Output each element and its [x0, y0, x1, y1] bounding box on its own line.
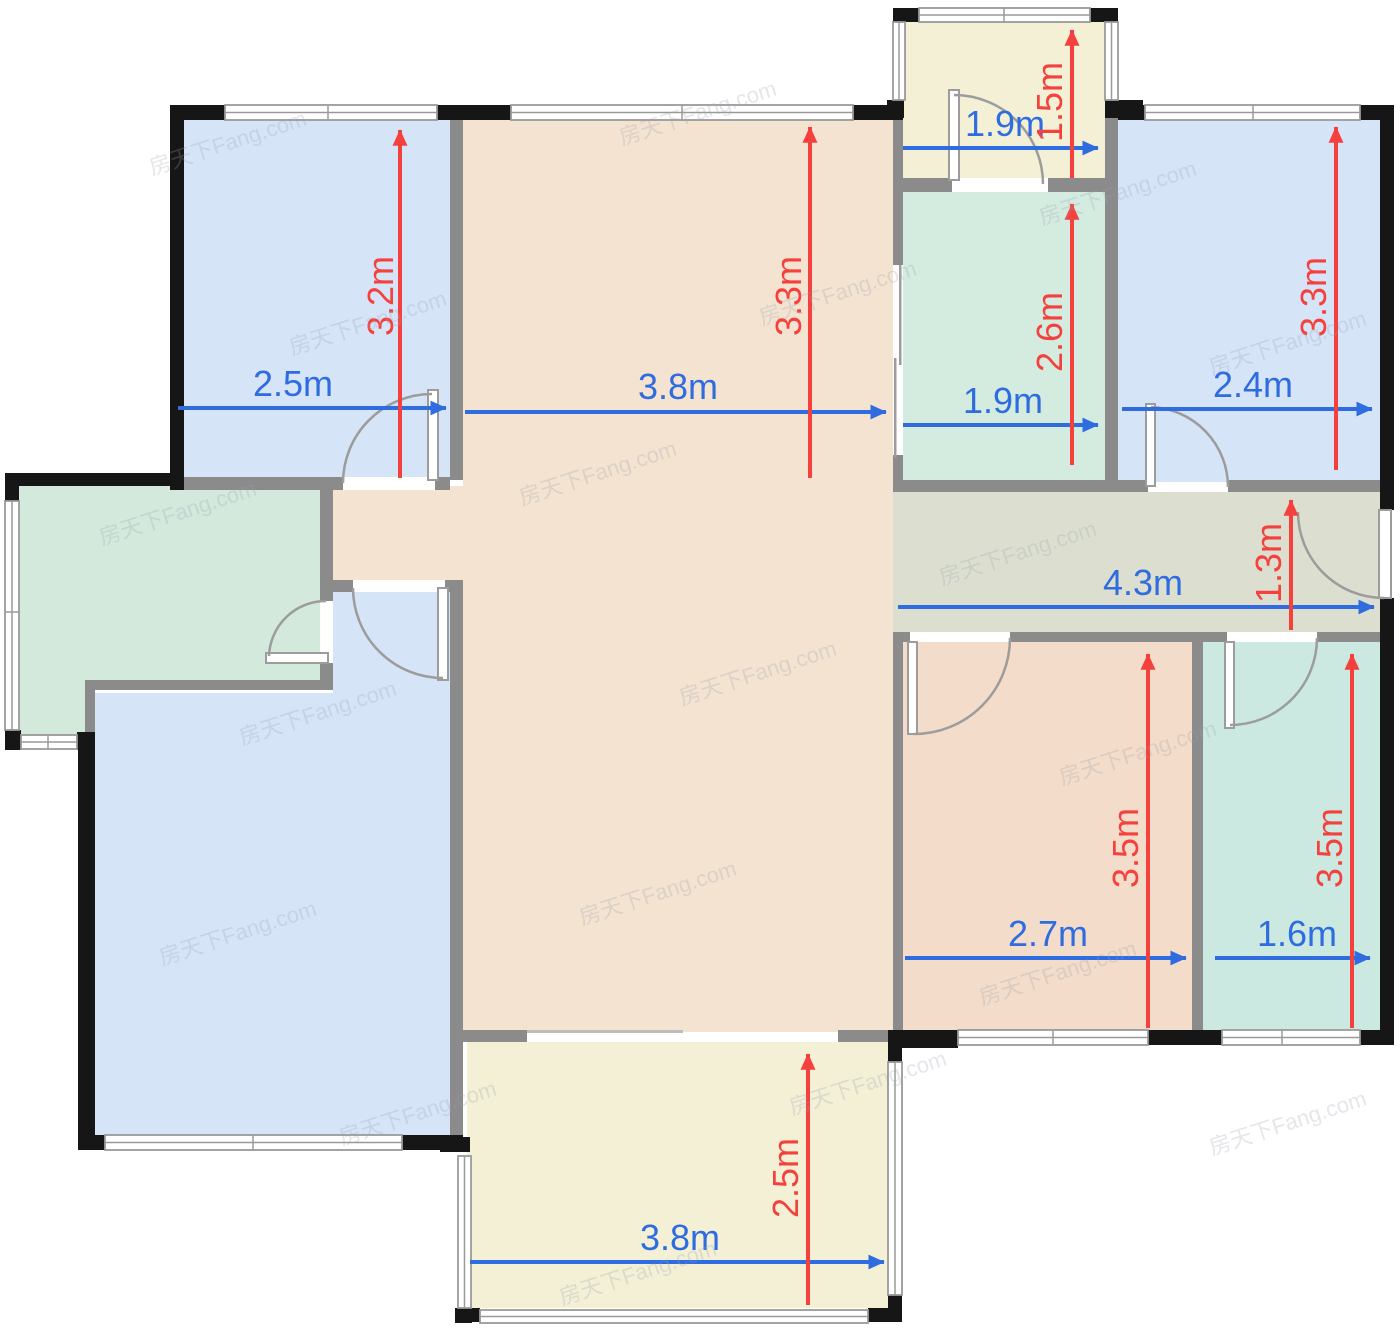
height-label-bathroom-bottom-right: 3.5m	[1309, 808, 1350, 888]
window	[1145, 105, 1360, 120]
window	[919, 8, 1090, 22]
window	[888, 1062, 902, 1295]
width-label-bedroom-bottom: 2.7m	[1008, 913, 1088, 954]
window	[480, 1310, 868, 1323]
watermark-text: 房天下Fang.com	[1206, 1086, 1370, 1160]
floor-plan-canvas: 2.5m 3.2m 3.8m 3.3m 1.9m 1.5m 1.9m 2.6m …	[0, 0, 1400, 1328]
window	[458, 1156, 471, 1308]
room-balcony-top	[903, 22, 1105, 178]
width-label-living: 3.8m	[638, 366, 718, 407]
window	[1222, 1030, 1360, 1045]
height-label-hallway: 1.3m	[1248, 523, 1289, 603]
width-label-bathroom-top: 1.9m	[963, 380, 1043, 421]
window	[893, 22, 905, 100]
room-fills-layer	[17, 22, 1380, 1308]
window	[5, 501, 19, 730]
height-label-bathroom-top: 2.6m	[1029, 292, 1070, 372]
width-label-hallway: 4.3m	[1103, 562, 1183, 603]
window	[225, 105, 437, 120]
window	[1105, 22, 1118, 100]
height-label-bedroom-bottom: 3.5m	[1105, 808, 1146, 888]
balcony-sliding-opening	[527, 1033, 683, 1042]
room-living-arm	[333, 486, 463, 580]
height-label-balcony-top: 1.5m	[1029, 62, 1070, 142]
height-label-balcony-bottom: 2.5m	[765, 1138, 806, 1218]
room-bathroom-top	[903, 192, 1105, 480]
balcony-sliding-track	[527, 1030, 683, 1033]
sliding-door-bathroom-top	[893, 265, 903, 458]
window	[21, 735, 77, 749]
width-label-bedroom-top-left: 2.5m	[253, 363, 333, 404]
floor-plan-page: 2.5m 3.2m 3.8m 3.3m 1.9m 1.5m 1.9m 2.6m …	[0, 0, 1400, 1328]
width-label-bathroom-bottom-right: 1.6m	[1257, 913, 1337, 954]
window	[958, 1030, 1148, 1045]
